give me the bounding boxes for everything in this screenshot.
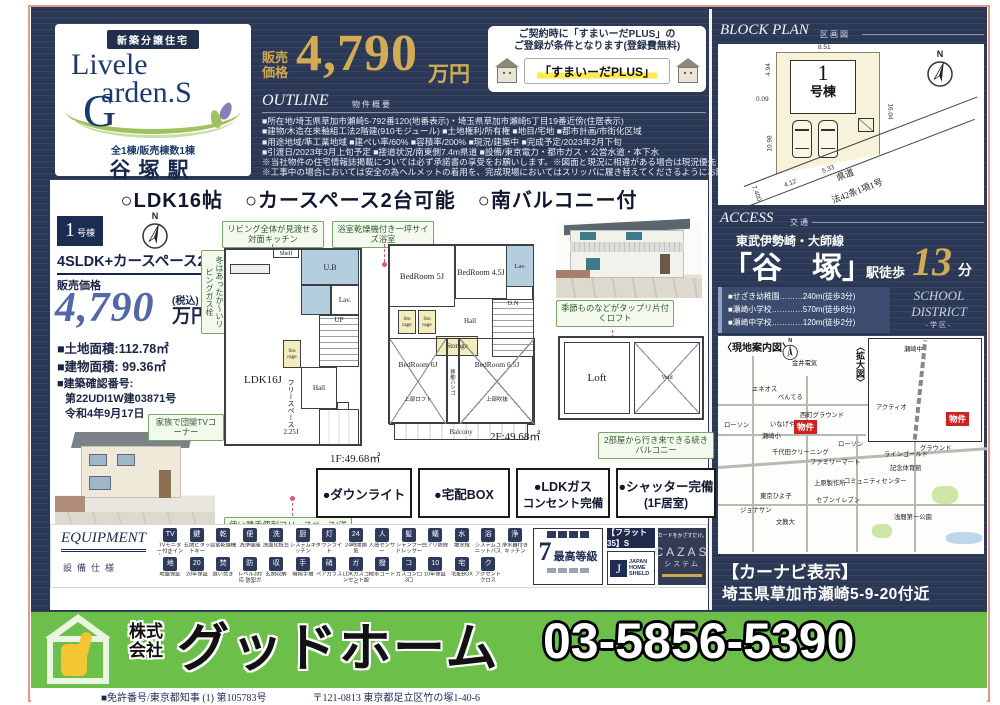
equipment-item: 1010年保証: [422, 557, 449, 586]
equipment-label: LDKガスコンセント設置: [343, 572, 369, 583]
company-prefix: 株式 会社: [129, 622, 163, 660]
grade-badge: 7 最高等級: [533, 528, 603, 585]
map-label: 金井電気: [792, 358, 817, 367]
room-sto-b: Sto rage: [418, 310, 436, 334]
equipment-label: 階段手摺: [290, 572, 316, 583]
feature-box-line1: ●宅配BOX: [434, 484, 494, 503]
blockplan-subtitle: 区画図: [820, 29, 850, 40]
dim-left-lower: 10.98: [767, 135, 774, 151]
equipment-icon: 防: [243, 557, 257, 571]
outline-line: ■用途地域/準工業地域 ■建ぺい率/60% ■容積率/200% ■現況/建築中 …: [262, 137, 708, 147]
unit-layout: 4SLDK+カースペース2台: [57, 250, 220, 275]
equipment-item: 乾浴室乾燥機: [210, 528, 237, 557]
map-label: ローソン: [724, 420, 749, 429]
equipment-item: 鍵玄関ピタットキー: [184, 528, 211, 557]
equipment-item: 水散水栓: [449, 528, 476, 557]
equipment-item: 髪シャンプードレッサー: [396, 528, 423, 557]
leader-line: [384, 244, 385, 262]
room-bed65: BedRoom 6.5J 上部吹抜: [459, 338, 535, 425]
room-free-space: フリースペース 2.25J: [281, 370, 301, 444]
equipment-icon: 硝: [322, 557, 336, 571]
approval-date: 令和4年9月17日: [65, 405, 144, 421]
feature-headline-item: ○LDK16帖: [121, 184, 223, 213]
outline-line: ■所在地/埼玉県草加市瀬崎5-792番120(地番表示)・埼玉県草加市瀬崎5丁目…: [262, 116, 708, 126]
floorplan-2f: BedRoom 5J BedRoom 4.5J Lav. D.N Hall St…: [388, 244, 534, 424]
price-value: 4,790: [296, 24, 418, 83]
equipment-item: 人人感センサー: [369, 528, 396, 557]
map-label: 記念体育館: [890, 463, 921, 472]
ladder: 移動ハシゴ: [447, 338, 459, 425]
equipment-icon: 人: [375, 528, 389, 542]
equipment-label: 宅配BOX: [449, 572, 475, 583]
equipment-icon: TV: [163, 528, 177, 542]
plot-unit-label: 1 号棟: [790, 60, 856, 114]
equipment-icon: 鍵: [190, 528, 204, 542]
equipment-item: 便洗浄便座: [237, 528, 264, 557]
real-estate-flyer: 新築分譲住宅 Livele G arden.S 全1棟/販売棟数1棟 谷塚駅 販…: [0, 0, 1000, 705]
room-hall: Hall: [301, 367, 337, 409]
map-label: ファミリーマート: [810, 457, 860, 466]
approval-label: ■建築確認番号:: [57, 375, 133, 391]
outline-rule: [262, 112, 706, 113]
equipment-label: 玄関収納: [263, 572, 289, 583]
outline-title: OUTLINE: [262, 92, 329, 110]
feature-headline-item: ○カースペース2台可能: [245, 184, 456, 213]
equipment-label: ペアガラス: [316, 572, 342, 583]
access-subtitle: 交通: [790, 217, 810, 228]
equipment-item: 地地盤保証: [157, 557, 184, 586]
feature-box: ●宅配BOX: [418, 468, 510, 518]
dim-left-upper: 4.94: [765, 63, 772, 76]
dim-top: 8.51: [818, 44, 831, 51]
map-label: いなげや: [770, 419, 795, 428]
callout-tv-corner: 家族で団欒TVコーナー: [148, 414, 224, 441]
column-divider: [709, 9, 712, 610]
area-map: 〈拡大図〉 〈現地案内図〉 N 物件 物件 金井電気エネオスべんてる西町グラウン…: [718, 336, 984, 554]
equipment-icon: ガ: [349, 557, 363, 571]
equipment-icon: 地: [163, 557, 177, 571]
equipment-label: 白アリ防除: [422, 543, 448, 554]
equipment-icon: 髪: [402, 528, 416, 542]
feature-box: ●ダウンライト: [316, 468, 412, 518]
map-label: ジョナサン: [740, 505, 771, 514]
kitchen-counter: [230, 264, 270, 274]
map-label: 千代田クリーニング: [772, 447, 829, 456]
school-district-label: SCHOOL DISTRICT -学区-: [892, 288, 986, 330]
feature-box: ●LDKガスコンセント完備: [516, 468, 610, 518]
equipment-item: 浄浄水器付きキッチン: [502, 528, 529, 557]
map-label: べんてる: [778, 392, 803, 401]
equipment-label: 洗浄便座: [237, 543, 263, 554]
equipment-item: 焚追い焚き: [210, 557, 237, 586]
price-label: 販売 価格: [262, 50, 288, 80]
plot-storage: [858, 118, 874, 132]
equipment-icon: コ: [402, 557, 416, 571]
house-mascot2-icon: [676, 58, 700, 84]
equipment-label: 追い焚き: [210, 572, 236, 583]
property-marker-inset: 物件: [946, 412, 969, 426]
equipment-item: コガスコンロ3口: [396, 557, 423, 586]
equipment-item: 硝ペアガラス: [316, 557, 343, 586]
equipment-label: 10年保証: [422, 572, 448, 583]
stairs-up: UP: [319, 315, 359, 367]
equipment-label: 浄水器付きキッチン: [502, 543, 528, 554]
equipment-icon: 洗: [269, 528, 283, 542]
footer-banner: 株式 会社 グッドホーム 03-5856-5390: [31, 612, 987, 688]
equipment-icon: 宅: [455, 557, 469, 571]
map-label: 東京ひよ子: [760, 491, 791, 500]
equipment-label: 地盤保証: [157, 572, 183, 583]
equipment-item: 撥撥水コート: [369, 557, 396, 586]
station-display: 「谷 塚」: [722, 243, 872, 287]
sumaida-note-2: ご登録が条件となります(登録費無料): [488, 41, 706, 53]
callout-loft: 季節ものなどがタップリ片付くロフト: [556, 300, 674, 327]
equipment-icon: 浴: [481, 528, 495, 542]
equipment-row: TVTVモニター付きインターフォン鍵玄関ピタットキー乾浴室乾燥機便洗浄便座洗洗面…: [157, 528, 531, 557]
equipment-icon: 厨: [296, 528, 310, 542]
japan-home-shield-badge: J JAPAN HOME SHIELD: [607, 551, 655, 585]
land-area: ■土地面積:112.78㎡: [57, 338, 169, 357]
equipment-subtitle: 設備仕様: [63, 561, 119, 574]
equipment-label: ダウンライト: [316, 543, 342, 554]
outline-line: ※工事中の場合においては安全の為ヘルメットの着用を、完成現場においてはスリッパに…: [262, 167, 708, 177]
equipment-icon: 便: [243, 528, 257, 542]
room-storage-small: Sto rage: [283, 340, 301, 368]
map-label: ローソン: [838, 439, 863, 448]
equipment-item: 厨システムキッチン: [290, 528, 317, 557]
sumaida-banner: 「すまいーだPLUS」: [524, 58, 670, 84]
room-lav: Lav.: [331, 285, 359, 315]
room-lav-2f: Lav.: [506, 245, 534, 287]
flat35-badge: 【フラット35】S: [607, 528, 655, 548]
dim-left-small: 0.09: [756, 96, 769, 103]
equipment-icons: TVTVモニター付きインターフォン鍵玄関ピタットキー乾浴室乾燥機便洗浄便座洗洗面…: [157, 528, 531, 586]
outline-lines: ■所在地/埼玉県草加市瀬崎5-792番120(地番表示)・埼玉県草加市瀬崎5丁目…: [262, 116, 708, 178]
map-label: 浅間第一公園: [894, 512, 932, 521]
sumaida-plus-box: ご契約時に「すまいーだPLUS」の ご登録が条件となります(登録費無料) 「すま…: [488, 26, 706, 92]
equipment-icon: 手: [296, 557, 310, 571]
walk-minutes-unit: 分: [958, 260, 972, 280]
callout-balcony: 2部屋から行き来できる続きバルコニー: [598, 432, 714, 459]
brand-name-line2: arden.S: [101, 76, 192, 110]
equipment-icon: 乾: [216, 528, 230, 542]
equipment-icon: 水: [455, 528, 469, 542]
compass-icon: N: [923, 50, 957, 91]
equipment-label: TVモニター付きインターフォン: [157, 543, 183, 554]
equipment-item: TVTVモニター付きインターフォン: [157, 528, 184, 557]
equipment-item: 蟻白アリ防除: [422, 528, 449, 557]
price-unit: 万円: [428, 58, 470, 88]
equipment-label: システムキッチン: [290, 543, 316, 554]
car-icon: [792, 120, 812, 158]
map-label: コミュニティセンター: [844, 476, 907, 485]
road-label-1: 県道: [834, 165, 855, 184]
map-label: 西町グラウンド: [800, 410, 844, 419]
equipment-item: 宅宅配BOX: [449, 557, 476, 586]
new-build-badge: 新築分譲住宅: [107, 30, 199, 49]
school-line: ■瀬崎小学校…………570m(徒歩8分): [728, 303, 890, 316]
leader-dot: [290, 496, 295, 501]
company-logo-icon: [39, 614, 117, 686]
room-void: Void: [634, 342, 700, 414]
outline-line: ■引渡日/2023年3月上旬予定 ■接道状況/南東側7.4m県道 ■設備/東京電…: [262, 147, 708, 157]
leader-dot: [382, 262, 387, 267]
map-label: エネオス: [752, 384, 777, 393]
school-line: ■瀬崎中学校…………120m(徒歩2分): [728, 316, 890, 329]
equipment-icon: 20: [190, 557, 204, 571]
equipment-label: システムユニットバス: [475, 543, 501, 554]
feature-box-line1: ●ダウンライト: [323, 484, 406, 503]
feature-box-line2: (1F居室): [644, 495, 688, 511]
equipment-icon: 蟻: [428, 528, 442, 542]
room-powder: [301, 285, 331, 315]
cazas-badge: カードをかざすだけ。 CAZAS システム: [658, 528, 706, 585]
map-label: 瀬崎小: [762, 431, 781, 440]
company-address: 〒121-0813 東京都足立区竹の塚1-40-6: [312, 689, 480, 704]
room-loft: Loft: [564, 342, 630, 414]
equipment-icon: 浄: [508, 528, 522, 542]
equipment-icon: 24: [349, 528, 363, 542]
map-label: 瀬崎中: [904, 344, 923, 353]
map-inset-title: 〈拡大図〉: [854, 342, 867, 387]
sumaida-note-1: ご契約時に「すまいーだPLUS」の: [488, 29, 706, 41]
equipment-item: 手階段手摺: [290, 557, 317, 586]
phone-number: 03-5856-5390: [543, 612, 854, 670]
compass-icon: N: [138, 212, 172, 253]
approval-number: 第22UDI1W建03871号: [65, 390, 176, 406]
room-ub: U.B: [301, 249, 359, 285]
equipment-item: クアクセントクロス: [475, 557, 502, 586]
room-bed5: BedRoom 5J: [389, 245, 455, 307]
equipment-label: 20年保証: [184, 572, 210, 583]
access-title: ACCESS: [720, 210, 773, 227]
equipment-item: 2020年保証: [184, 557, 211, 586]
room-bed45: BedRoom 4.5J: [455, 245, 507, 299]
floorplan-loft: Loft Void: [558, 336, 704, 420]
property-marker: 物件: [794, 420, 817, 434]
equipment-label: 撥水コート: [369, 572, 395, 583]
access-rule: [812, 222, 984, 223]
equipment-item: ガLDKガスコンセント設置: [343, 557, 370, 586]
unit-price-value: 4,790: [55, 284, 155, 332]
equipment-icon: 10: [428, 557, 442, 571]
carnavi-title: 【カーナビ表示】: [722, 558, 858, 583]
room-hall-2f: Hall: [448, 308, 492, 334]
equipment-label: 浴室乾燥機: [210, 543, 236, 554]
floorplan-1f: Shelf LDK16J U.B Lav. UP Sto rage Hall フ…: [224, 248, 362, 446]
entrance-porch: [319, 409, 359, 445]
school-list: ■せざき幼稚園………240m(徒歩3分)■瀬崎小学校…………570m(徒歩8分)…: [718, 287, 890, 333]
equipment-label: 玄関ピタットキー: [184, 543, 210, 554]
dim-right: 16.04: [887, 103, 894, 119]
caption-2f: 2F:49.68㎡: [490, 428, 540, 444]
equipment-label: ガスコンロ3口: [396, 572, 422, 583]
equipment-item: 防レベル3対応 防犯ガラス: [237, 557, 264, 586]
equipment-title: EQUIPMENT: [61, 530, 146, 552]
fine-print: ■免許番号/東京都知事 (1) 第105783号 〒121-0813 東京都足立…: [31, 688, 987, 705]
map-label: 上原製作所: [814, 478, 845, 487]
equipment-label: 24時間換気: [343, 543, 369, 554]
room-bed6: BedRoom 6J 上部ロフト: [389, 338, 447, 425]
walk-label: 駅徒歩: [866, 262, 905, 281]
feature-box-line1: ●LDKガス: [534, 476, 592, 495]
company-name: グッドホーム: [177, 606, 499, 681]
building-area: ■建物面積: 99.36㎡: [57, 356, 166, 375]
outline-line: ■建物/木造在来軸組工法2階建(910モジュール) ■土地権利/所有権 ■地目/…: [262, 126, 708, 136]
equipment-item: 浴システムユニットバス: [475, 528, 502, 557]
carnavi-address: 埼玉県草加市瀬崎5-9-20付近: [722, 582, 930, 604]
equipment-icon: 灯: [322, 528, 336, 542]
blockplan-title: BLOCK PLAN: [720, 22, 809, 39]
walk-minutes: 13: [912, 238, 952, 285]
equipment-label: 散水栓: [449, 543, 475, 554]
map-label: グラウンド: [920, 443, 951, 452]
brand-logo-box: 新築分譲住宅 Livele G arden.S 全1棟/販売棟数1棟 谷塚駅: [55, 24, 251, 176]
blockplan-rule: [862, 34, 984, 35]
feature-box-line1: ●シャッター完備: [618, 476, 713, 495]
map-label: 文教大: [776, 517, 795, 526]
school-line: ■せざき幼稚園………240m(徒歩3分): [728, 290, 890, 303]
caption-1f: 1F:49.68㎡: [330, 450, 380, 466]
unit-number-badge: 1 号棟: [57, 216, 103, 246]
equipment-label: アクセントクロス: [475, 572, 501, 583]
equipment-label: 人感センサー: [369, 543, 395, 554]
license-number: ■免許番号/東京都知事 (1) 第105783号: [101, 689, 266, 704]
equipment-row: 地地盤保証2020年保証焚追い焚き防レベル3対応 防犯ガラス収玄関収納手階段手摺…: [157, 557, 531, 586]
equipment-label: レベル3対応 防犯ガラス: [237, 572, 263, 583]
feature-headline-item: ○南バルコニー付: [478, 184, 638, 213]
feature-box: ●シャッター完備(1F居室): [616, 468, 716, 518]
room-sto-a: Sto rage: [398, 310, 416, 334]
equipment-item: 洗洗面化粧台: [263, 528, 290, 557]
equipment-label: 洗面化粧台: [263, 543, 289, 554]
feature-box-line2: コンセント完備: [523, 495, 604, 511]
equipment-icon: 撥: [375, 557, 389, 571]
features-headline: ○LDK16帖○カースペース2台可能○南バルコニー付: [50, 184, 708, 213]
house-mascot-icon: [495, 58, 519, 84]
map-label: セブンイレブン: [816, 495, 860, 504]
equipment-icon: 収: [269, 557, 283, 571]
equipment-panel: EQUIPMENT 設備仕様 TVTVモニター付きインターフォン鍵玄関ピタットキ…: [50, 524, 708, 588]
equipment-icon: 焚: [216, 557, 230, 571]
house-render: [556, 220, 702, 298]
callout-kitchen: リビング全体が見渡せる対面キッチン: [222, 221, 324, 248]
equipment-item: 収玄関収納: [263, 557, 290, 586]
equipment-item: 2424時間換気: [343, 528, 370, 557]
equipment-item: 灯ダウンライト: [316, 528, 343, 557]
map-label: アクティオ: [876, 402, 907, 411]
equipment-icon: ク: [481, 557, 495, 571]
outline-line: ※当社物件の住宅情報誌掲載については必ず承諾書の享受をお願いします。※図面と現況…: [262, 157, 708, 167]
outline-subtitle: 物件概要: [352, 99, 392, 110]
feature-boxes: ●ダウンライト●宅配BOX●LDKガスコンセント完備●シャッター完備(1F居室): [316, 468, 716, 518]
blockplan-box: 1 号棟 8.51 4.94 0.09 16.04 10.98 4.12 5.3…: [718, 44, 984, 205]
equipment-label: シャンプードレッサー: [396, 543, 422, 554]
